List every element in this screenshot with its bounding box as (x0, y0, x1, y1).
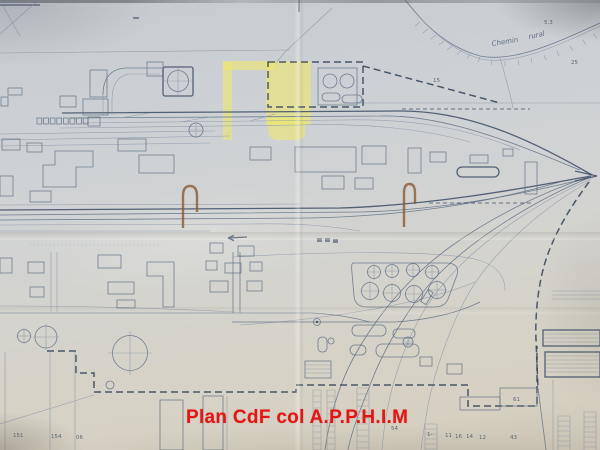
track-ladder (558, 416, 570, 450)
rail-network (0, 68, 597, 450)
striped-shed (305, 361, 331, 378)
tank-circle (323, 74, 337, 88)
brown-hook (404, 184, 415, 227)
road-label: Chemin (491, 36, 519, 48)
parcel-number: 61 (513, 397, 520, 403)
parcel-number: 15 (433, 78, 440, 84)
highlight-vertical-bar (223, 62, 232, 140)
track-ladder (584, 412, 596, 450)
warehouses (543, 291, 600, 450)
parcel-number: 25 (571, 60, 578, 66)
turntable-circles (16, 324, 152, 389)
highlight-marks (223, 61, 311, 140)
paper-top-edge (0, 0, 600, 3)
parcel-number: 5.3 (544, 20, 553, 26)
parcel-number: 1- (427, 432, 432, 438)
main-hall (295, 147, 356, 172)
tank-circle (340, 74, 354, 88)
road-label: rural (528, 30, 546, 41)
tank-farm (352, 262, 458, 307)
parcel-number: 14 (466, 434, 473, 440)
parcel-number: 154 (51, 434, 62, 440)
plan-photo: Chemin rural 15 25 5.3 61 54 43 12 14 16… (0, 0, 600, 450)
parcel-number: 16 (455, 434, 462, 440)
corner-lines (0, 0, 332, 63)
parcel-number: 43 (510, 435, 517, 441)
highlight-block (266, 61, 311, 125)
parcel-number: 11 (445, 433, 452, 439)
parcel-number: 06 (76, 435, 83, 441)
plan-caption: Plan CdF col A.P.P.H.I.M (186, 407, 408, 429)
parcel-number: 12 (479, 435, 486, 441)
section-lines (0, 352, 227, 450)
highlight-blob (268, 118, 305, 140)
rural-road (340, 0, 600, 108)
brown-hook (183, 186, 197, 228)
site-plan-drawing: Chemin rural 15 25 5.3 61 54 43 12 14 16… (0, 0, 600, 450)
parcel-number: 151 (13, 433, 24, 439)
